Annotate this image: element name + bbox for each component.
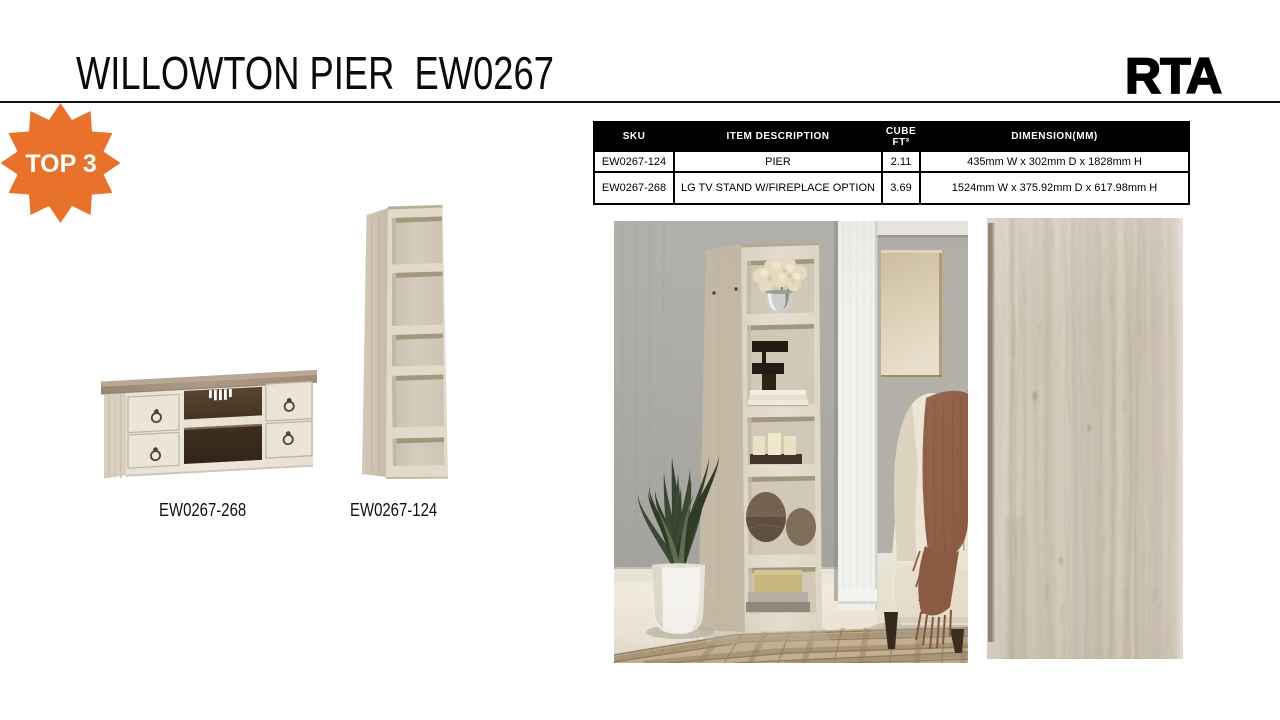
svg-text:TOP 3: TOP 3 (25, 150, 96, 178)
